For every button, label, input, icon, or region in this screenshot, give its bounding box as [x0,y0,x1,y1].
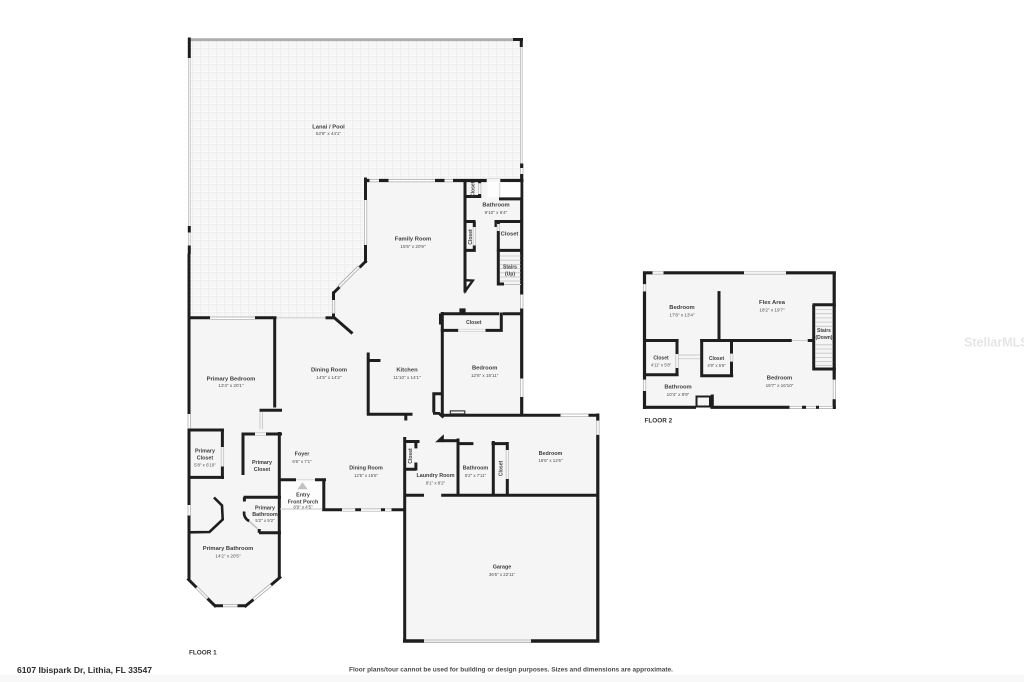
svg-text:6107 Ibispark Dr, Lithia, FL 3: 6107 Ibispark Dr, Lithia, FL 33547 [17,665,152,675]
svg-text:Closet: Closet [653,356,669,362]
svg-text:4'11" x 5'8": 4'11" x 5'8" [651,363,672,368]
svg-text:5'8" x 6'10": 5'8" x 6'10" [194,463,216,468]
svg-text:Bedroom: Bedroom [669,305,694,311]
svg-text:Entry: Entry [296,493,310,499]
svg-text:Closet: Closet [466,320,482,326]
svg-text:Laundry Room: Laundry Room [416,473,454,479]
svg-text:Foyer: Foyer [295,452,311,458]
svg-text:9'10" x 6'4": 9'10" x 6'4" [485,210,508,215]
svg-text:12'5" x 15'6": 12'5" x 15'6" [354,473,379,478]
svg-text:Dining Room: Dining Room [349,466,383,472]
svg-text:15'5" x 20'9": 15'5" x 20'9" [400,244,426,249]
svg-text:Closet: Closet [709,356,725,362]
svg-text:Bathroom: Bathroom [463,466,489,472]
svg-text:5'2" x 9'2": 5'2" x 9'2" [255,518,275,523]
svg-text:13'4" x 20'1": 13'4" x 20'1" [218,383,244,388]
svg-text:Bedroom: Bedroom [539,451,563,457]
svg-text:Closet: Closet [468,229,474,245]
svg-text:Primary: Primary [252,460,272,466]
svg-text:14'2" x 20'5": 14'2" x 20'5" [215,554,241,559]
svg-text:Floor plans/tour cannot be use: Floor plans/tour cannot be used for buil… [349,667,673,674]
svg-text:Closet: Closet [499,461,505,477]
svg-text:Closet: Closet [254,467,271,473]
svg-text:Primary: Primary [255,506,275,512]
svg-text:14'5" x 14'2": 14'5" x 14'2" [316,375,342,380]
svg-text:Primary: Primary [195,449,215,455]
svg-text:Closet: Closet [197,456,214,462]
svg-text:16'6" x 12'6": 16'6" x 12'6" [538,458,563,463]
svg-text:8'1" x 8'2": 8'1" x 8'2" [426,480,446,485]
svg-text:Primary Bedroom: Primary Bedroom [207,377,256,383]
svg-text:StellarMLS: StellarMLS [964,336,1024,350]
svg-text:36'6" x 22'11": 36'6" x 22'11" [489,572,516,577]
svg-text:(Up): (Up) [505,271,515,277]
svg-text:Stairs: Stairs [817,328,831,334]
svg-text:Kitchen: Kitchen [396,368,418,374]
svg-text:5'2" x 7'11": 5'2" x 7'11" [465,473,487,478]
svg-text:Closet: Closet [501,232,519,238]
svg-text:Closet: Closet [408,448,414,464]
svg-text:Lanai / Pool: Lanai / Pool [312,125,345,131]
svg-text:Flex Area: Flex Area [759,300,786,306]
svg-text:4'9" x 5'6": 4'9" x 5'6" [707,363,726,368]
svg-text:Garage: Garage [493,565,512,571]
svg-text:12'6" x 15'11": 12'6" x 15'11" [471,373,499,378]
svg-text:Stairs: Stairs [503,264,517,270]
svg-text:FLOOR 2: FLOOR 2 [645,418,673,425]
svg-text:Primary Bathroom: Primary Bathroom [203,546,254,552]
svg-text:10'4" x 9'9": 10'4" x 9'9" [667,392,690,397]
svg-text:Bedroom: Bedroom [767,376,792,382]
svg-text:Family Room: Family Room [395,237,431,243]
svg-text:11'10" x 14'1": 11'10" x 14'1" [393,375,421,380]
svg-text:6'6" x 7'1": 6'6" x 7'1" [292,459,312,464]
svg-text:8'9" x 4'5": 8'9" x 4'5" [293,505,313,510]
svg-text:Bathroom: Bathroom [664,385,691,391]
svg-text:FLOOR 1: FLOOR 1 [189,650,217,657]
svg-text:Bedroom: Bedroom [472,366,497,372]
svg-text:52'9" x 44'1": 52'9" x 44'1" [316,131,342,136]
svg-text:19'7" x 16'10": 19'7" x 16'10" [766,383,794,388]
svg-text:Dining Room: Dining Room [311,368,347,374]
svg-text:Bathroom: Bathroom [482,203,509,209]
svg-text:18'2" x 19'7": 18'2" x 19'7" [759,308,785,313]
svg-text:Closet: Closet [471,181,477,197]
svg-text:(Down): (Down) [816,335,833,341]
svg-text:17'8" x 13'4": 17'8" x 13'4" [669,313,695,318]
